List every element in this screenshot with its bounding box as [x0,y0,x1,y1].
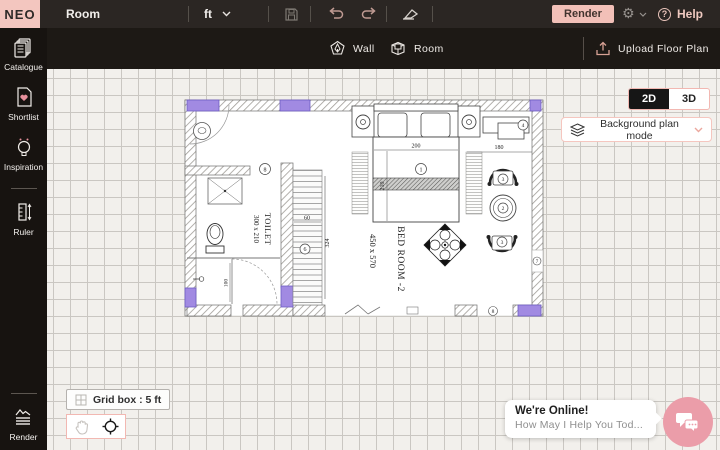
sidebar-item-label: Ruler [13,227,33,237]
sidebar-item-label: Shortlist [8,112,39,122]
pan-tool-button[interactable] [67,415,96,438]
save-icon [284,7,299,22]
upload-floor-plan-label: Upload Floor Plan [618,43,709,55]
chevron-down-icon [639,12,647,17]
sidebar-divider [11,393,37,394]
question-icon: ? [658,8,671,21]
grid-size-indicator: Grid box : 5 ft [66,389,170,410]
room-tool-icon [389,40,407,57]
sidebar-item-label: Inspiration [4,162,43,172]
layers-icon [570,123,585,137]
shortlist-icon [13,86,35,108]
render-icon [12,406,34,428]
divider [386,6,387,22]
sidebar-item-label: Render [10,432,38,442]
grid-icon [75,394,87,406]
view-mode-toggle: 2D 3D [628,88,710,110]
bedroom-label: BED ROOM -2 [395,226,405,292]
tag-3b: 3 [501,240,504,246]
app-logo[interactable]: NEO [0,0,40,28]
chevron-down-icon [222,11,231,17]
crosshair-icon [102,418,119,435]
redo-icon [361,7,378,21]
dim-bed-height: 210 [380,182,386,191]
ruler-icon [13,201,35,223]
background-plan-mode-label: Background plan mode [593,118,686,142]
sidebar-item-render[interactable]: Render [10,406,38,442]
sidebar-item-catalogue[interactable]: Catalogue [4,36,43,72]
chat-message: How May I Help You Tod... [515,419,646,431]
unit-select[interactable]: ft [204,0,231,28]
room-tool-label: Room [414,43,444,55]
sidebar-item-label: Catalogue [4,62,43,72]
toilet-wc[interactable] [206,224,224,254]
floor-plan[interactable]: 60 324 6 8 100 [183,93,545,325]
chat-launcher-button[interactable] [663,397,713,447]
wall-tool-button[interactable]: Wall [329,28,375,69]
bench-right[interactable] [466,152,482,214]
wall-tool-label: Wall [353,43,375,55]
sidebar-item-ruler[interactable]: Ruler [13,201,35,237]
page-title: Room [66,0,100,28]
gear-icon: ⚙ [622,7,635,21]
tag-6: 6 [304,247,307,253]
undo-button[interactable] [326,5,344,23]
upload-icon [595,40,611,57]
redo-button[interactable] [360,5,378,23]
toggle-3d[interactable]: 3D [669,89,709,109]
topbar: NEO Room ft [0,0,720,28]
dim-bed-width: 200 [412,144,421,150]
dim-desk: 180 [495,145,504,151]
divider [188,6,189,22]
sidebar-item-inspiration[interactable]: Inspiration [4,136,43,172]
dim-stair-width: 60 [304,216,310,222]
draw-toolbar: Wall Room Upload Floor Plan [47,28,720,69]
sidebar-divider [11,188,37,189]
unit-value: ft [204,7,212,21]
divider [310,6,311,22]
help-button[interactable]: ? Help [658,0,703,28]
catalogue-icon [12,36,34,58]
dim-toilet: 100 [224,279,230,288]
tag-3a: 3 [502,177,505,183]
locate-button[interactable] [96,415,125,438]
hand-icon [74,419,89,435]
sidebar: Catalogue Shortlist Inspiration [0,28,47,450]
tag-4: 4 [522,123,525,129]
grid-size-label: Grid box : 5 ft [93,394,161,406]
tag-8b: 8 [492,309,495,315]
eraser-button[interactable] [402,5,420,23]
tag-2: 2 [502,206,505,212]
background-plan-mode-dropdown[interactable]: Background plan mode [561,117,712,142]
toilet-size-label: 300 x 210 [252,215,260,244]
dim-stair-height: 324 [325,239,331,248]
divider [432,6,433,22]
divider [268,6,269,22]
chat-status: We're Online! [515,405,646,417]
chat-message-bubble[interactable]: We're Online! How May I Help You Tod... [505,400,656,438]
chat-icon [676,411,700,433]
tag-8a: 8 [264,167,267,173]
bench-left[interactable] [352,152,368,214]
bedroom-size-label: 450 x 570 [368,234,378,268]
settings-menu[interactable]: ⚙ [622,0,647,28]
eraser-icon [402,7,420,21]
help-label: Help [677,7,703,21]
canvas-nav-controls [66,414,126,439]
divider [583,37,584,60]
save-button[interactable] [282,5,300,23]
render-button[interactable]: Render [552,5,614,23]
chevron-down-icon [694,127,703,133]
staircase[interactable]: 60 324 6 [293,170,331,305]
tag-1: 1 [420,167,423,173]
room-tool-button[interactable]: Room [389,28,444,69]
inspiration-icon [13,136,35,158]
sidebar-item-shortlist[interactable]: Shortlist [8,86,39,122]
sink[interactable] [194,123,211,140]
app: NEO Room ft [0,0,720,450]
undo-icon [327,7,344,21]
round-table[interactable]: 2 [490,195,516,221]
upload-floor-plan-button[interactable]: Upload Floor Plan [595,28,709,69]
wall-tool-icon [329,40,346,57]
toilet-label: TOILET [263,213,273,246]
toggle-2d[interactable]: 2D [629,89,669,109]
